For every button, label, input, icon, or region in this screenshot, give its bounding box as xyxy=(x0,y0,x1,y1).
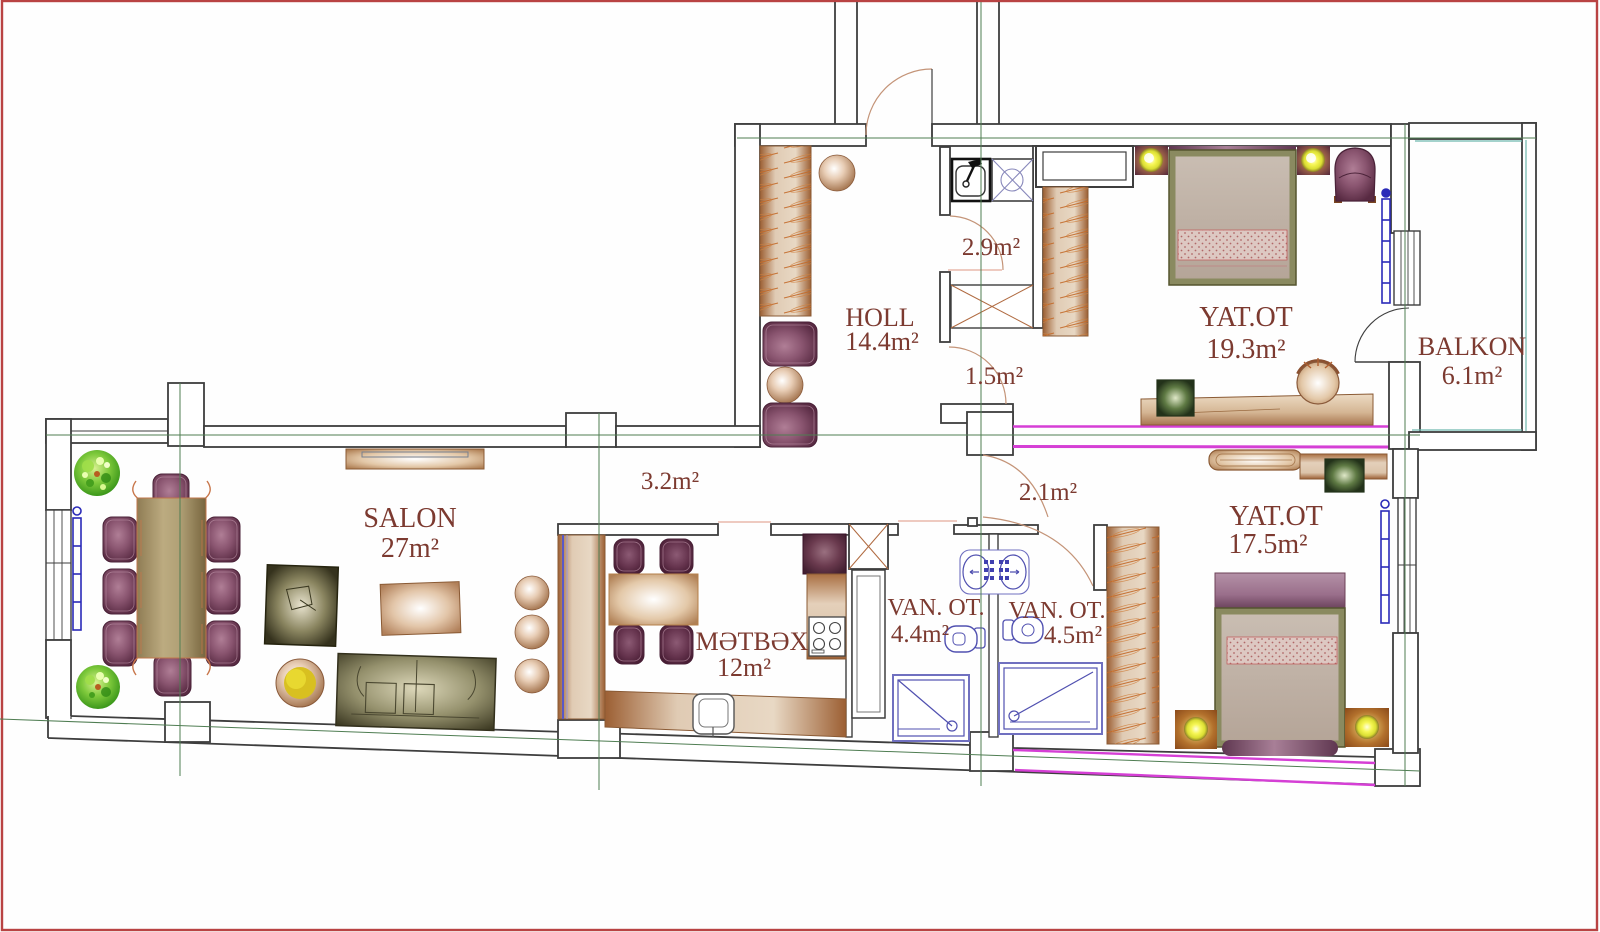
svg-text:YAT.OT: YAT.OT xyxy=(1229,501,1323,532)
svg-text:3.2m²: 3.2m² xyxy=(641,468,699,495)
svg-text:BALKON: BALKON xyxy=(1418,332,1527,361)
svg-text:VAN. OT.: VAN. OT. xyxy=(887,595,984,621)
svg-text:VAN. OT.: VAN. OT. xyxy=(1008,598,1105,624)
svg-text:MƏTBƏX: MƏTBƏX xyxy=(696,627,809,656)
svg-text:19.3m²: 19.3m² xyxy=(1206,334,1285,365)
svg-text:2.1m²: 2.1m² xyxy=(1019,479,1077,506)
svg-text:4.4m²: 4.4m² xyxy=(891,621,949,648)
svg-text:27m²: 27m² xyxy=(381,533,439,564)
svg-text:12m²: 12m² xyxy=(717,653,771,682)
svg-text:6.1m²: 6.1m² xyxy=(1442,361,1503,390)
svg-text:1.5m²: 1.5m² xyxy=(965,363,1023,390)
svg-text:14.4m²: 14.4m² xyxy=(845,327,919,356)
svg-text:17.5m²: 17.5m² xyxy=(1228,529,1307,560)
svg-text:SALON: SALON xyxy=(363,503,456,534)
svg-text:4.5m²: 4.5m² xyxy=(1044,622,1102,649)
svg-text:2.9m²: 2.9m² xyxy=(962,234,1020,261)
svg-text:YAT.OT: YAT.OT xyxy=(1199,302,1293,333)
